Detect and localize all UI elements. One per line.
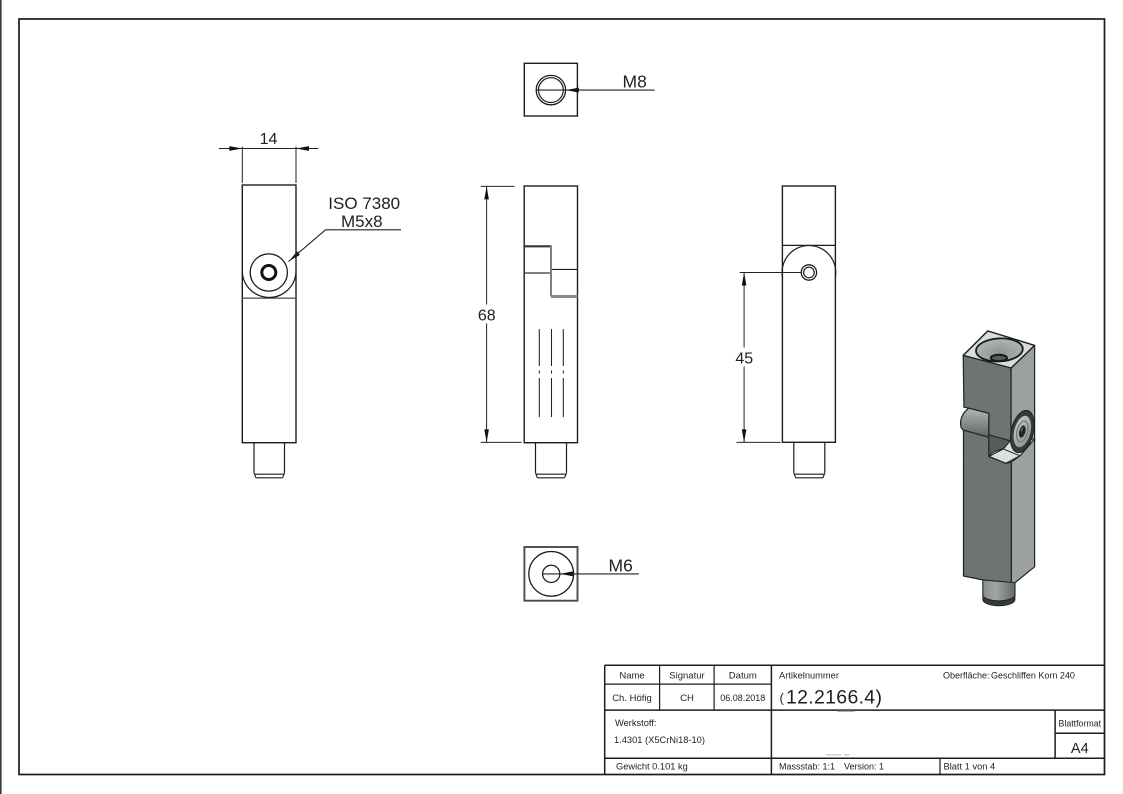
svg-text:Oberfläche:: Oberfläche: bbox=[943, 671, 990, 681]
svg-text:Artikelnummer: Artikelnummer bbox=[779, 671, 839, 681]
svg-text:Blatt 1 von 4: Blatt 1 von 4 bbox=[944, 762, 996, 772]
svg-text:45: 45 bbox=[735, 351, 753, 368]
svg-text:A4: A4 bbox=[1071, 741, 1089, 757]
svg-text:1.4301 (X5CrNi18-10): 1.4301 (X5CrNi18-10) bbox=[614, 735, 705, 745]
svg-text:Gewicht 0.101 kg: Gewicht 0.101 kg bbox=[616, 762, 688, 772]
svg-text:68: 68 bbox=[478, 308, 496, 325]
svg-text:Datum: Datum bbox=[729, 671, 757, 682]
svg-text:06.08.2018: 06.08.2018 bbox=[720, 693, 765, 703]
svg-text:Werkstoff:: Werkstoff: bbox=[615, 718, 657, 728]
svg-text:M6: M6 bbox=[609, 555, 633, 575]
svg-text:Name: Name bbox=[619, 671, 644, 682]
svg-text:ISO 7380: ISO 7380 bbox=[328, 194, 400, 213]
svg-text:Version: 1: Version: 1 bbox=[844, 762, 884, 772]
svg-text:Signatur: Signatur bbox=[669, 671, 704, 682]
svg-text:CH: CH bbox=[680, 693, 694, 704]
svg-text:Ch. Höfig: Ch. Höfig bbox=[612, 693, 652, 704]
svg-text:Geschliffen Korn 240: Geschliffen Korn 240 bbox=[991, 671, 1075, 681]
svg-text:(: ( bbox=[780, 691, 785, 706]
svg-text:Massstab: 1:1: Massstab: 1:1 bbox=[779, 762, 835, 772]
svg-text:M5x8: M5x8 bbox=[341, 212, 383, 231]
svg-text:14: 14 bbox=[260, 131, 278, 148]
svg-text:12.2166.4): 12.2166.4) bbox=[786, 687, 882, 709]
svg-text:Blattformat: Blattformat bbox=[1059, 719, 1102, 729]
svg-text:M8: M8 bbox=[623, 71, 647, 91]
